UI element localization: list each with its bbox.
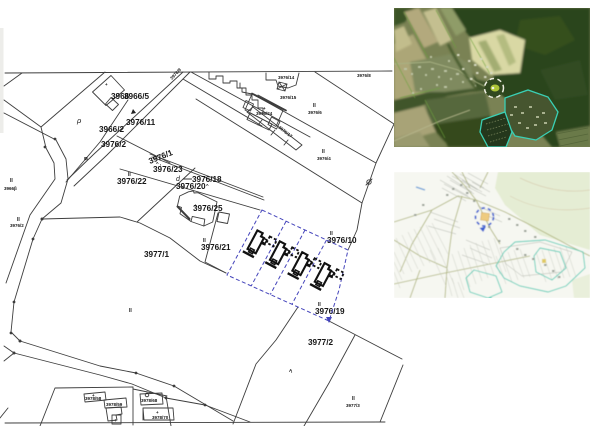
svg-text:3978/70: 3978/70 [152, 415, 169, 420]
svg-text:3976/19: 3976/19 [315, 307, 345, 316]
svg-text:^: ^ [206, 183, 209, 188]
svg-text:3966β: 3966β [4, 186, 17, 191]
svg-text:3977/3: 3977/3 [346, 403, 360, 408]
svg-text:3976/2: 3976/2 [101, 140, 126, 149]
svg-text:ρ: ρ [76, 116, 82, 125]
svg-text:3976/21: 3976/21 [201, 243, 231, 252]
svg-text:+: + [156, 410, 159, 415]
svg-text:3977/1: 3977/1 [144, 250, 169, 259]
svg-text:⊞: ⊞ [84, 156, 88, 161]
svg-text:3976/25: 3976/25 [193, 204, 223, 213]
svg-text:+: + [105, 82, 108, 87]
svg-text:3976/2: 3976/2 [10, 223, 24, 228]
svg-text:+: + [92, 393, 95, 398]
svg-text:3976/20: 3976/20 [176, 182, 206, 191]
svg-text:3976/24: 3976/24 [256, 111, 273, 116]
svg-text:3976/14: 3976/14 [278, 75, 295, 80]
svg-text:+: + [114, 418, 117, 423]
svg-text:3976/22: 3976/22 [117, 177, 147, 186]
svg-text:3977/2: 3977/2 [308, 338, 333, 347]
svg-text:3976/6: 3976/6 [308, 110, 322, 115]
svg-text:+: + [263, 106, 266, 111]
svg-text:3976/23: 3976/23 [153, 165, 183, 174]
svg-text:39663966/5: 39663966/5 [111, 92, 149, 101]
svg-text:3976/8: 3976/8 [357, 73, 371, 78]
svg-text:3976/10: 3976/10 [327, 236, 357, 245]
svg-text:+: + [194, 203, 197, 208]
svg-text:3976/4: 3976/4 [317, 156, 331, 161]
svg-text:3978/59: 3978/59 [106, 402, 123, 407]
svg-text:3978/68: 3978/68 [141, 398, 158, 403]
svg-text:3976/11: 3976/11 [126, 118, 156, 127]
svg-text:3976/15: 3976/15 [280, 95, 297, 100]
svg-text:3966/2: 3966/2 [99, 125, 124, 134]
